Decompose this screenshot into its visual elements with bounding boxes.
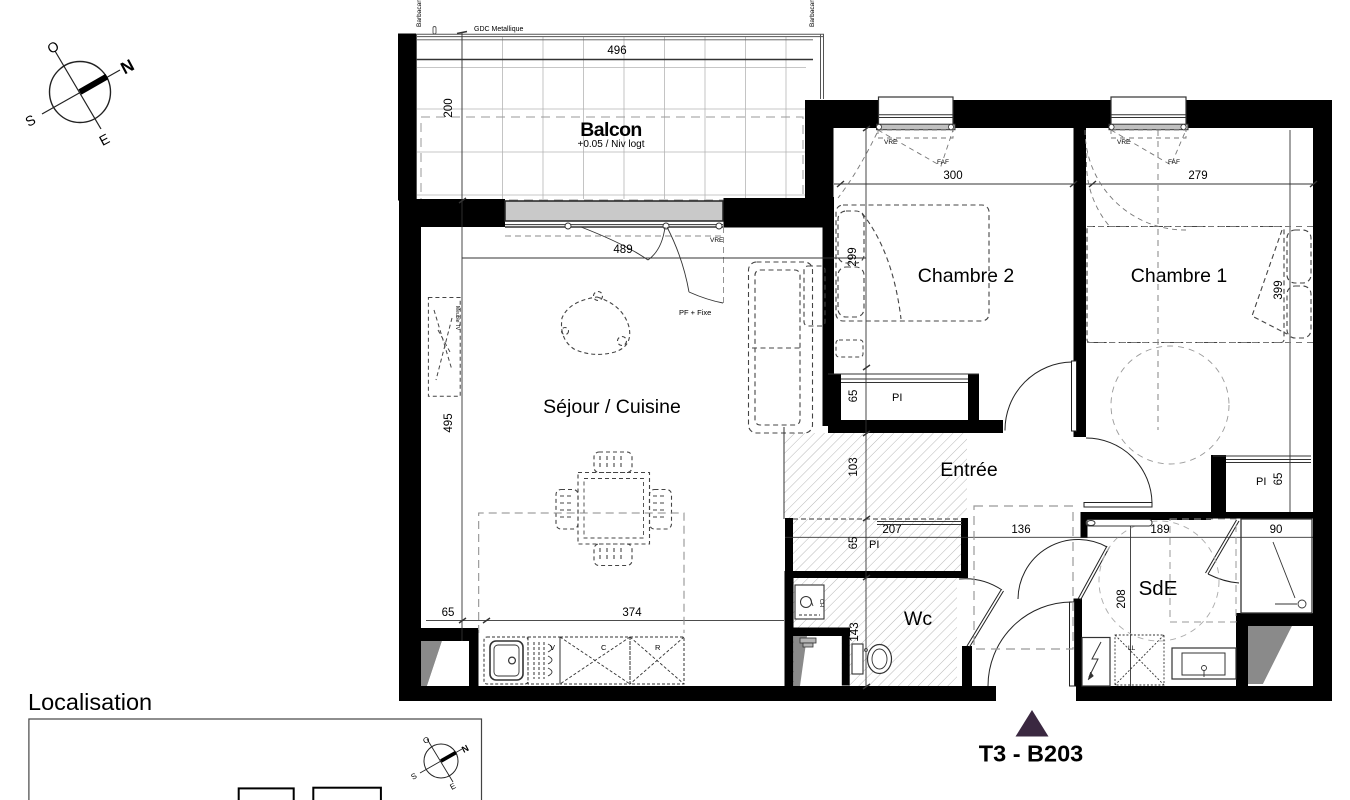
svg-text:143: 143 — [849, 622, 861, 641]
svg-text:189: 189 — [1150, 524, 1169, 536]
svg-text:200: 200 — [443, 98, 455, 117]
svg-text:489: 489 — [613, 244, 632, 256]
svg-text:208: 208 — [1116, 589, 1128, 608]
svg-text:+0.05 / Niv logt: +0.05 / Niv logt — [578, 139, 645, 150]
svg-text:65: 65 — [848, 537, 860, 550]
svg-text:Chambre 1: Chambre 1 — [1131, 265, 1227, 287]
svg-text:Localisation: Localisation — [28, 689, 152, 715]
svg-text:103: 103 — [848, 457, 860, 476]
svg-text:399: 399 — [1273, 280, 1285, 299]
svg-text:65: 65 — [848, 390, 860, 403]
svg-text:T3 - B203: T3 - B203 — [979, 741, 1084, 767]
svg-text:Séjour / Cuisine: Séjour / Cuisine — [543, 396, 681, 418]
svg-text:65: 65 — [442, 607, 455, 619]
svg-text:Balcon: Balcon — [580, 119, 641, 141]
svg-text:PI: PI — [869, 539, 879, 551]
svg-text:C: C — [601, 643, 607, 652]
svg-text:R: R — [655, 643, 661, 652]
svg-text:279: 279 — [1188, 170, 1207, 182]
svg-text:V: V — [550, 643, 555, 652]
svg-text:VRE: VRE — [1117, 139, 1131, 146]
svg-text:PI: PI — [1256, 476, 1266, 488]
svg-text:LL: LL — [1128, 645, 1136, 652]
svg-text:65: 65 — [1273, 473, 1285, 486]
svg-text:PF + Fixe: PF + Fixe — [679, 308, 711, 317]
svg-text:Barbacane: Barbacane — [809, 0, 816, 27]
svg-text:136: 136 — [1011, 524, 1030, 536]
svg-text:PI: PI — [892, 392, 902, 404]
svg-text:CH: CH — [818, 599, 824, 607]
svg-text:496: 496 — [607, 45, 626, 57]
svg-text:Chambre 2: Chambre 2 — [918, 265, 1014, 287]
svg-text:Barbacane: Barbacane — [416, 0, 423, 27]
svg-text:207: 207 — [882, 524, 901, 536]
svg-text:374: 374 — [622, 607, 642, 619]
svg-text:299: 299 — [847, 247, 859, 266]
svg-text:FAF: FAF — [937, 159, 949, 166]
svg-text:SdE: SdE — [1139, 577, 1178, 600]
svg-text:90: 90 — [1270, 524, 1283, 536]
svg-text:Entrée: Entrée — [940, 459, 997, 481]
svg-text:GDC Metallique: GDC Metallique — [474, 26, 524, 33]
svg-text:Meuble TV: Meuble TV — [454, 306, 460, 331]
svg-text:FAF: FAF — [1168, 159, 1180, 166]
svg-text:VRE: VRE — [884, 139, 898, 146]
svg-text:VRE: VRE — [710, 237, 724, 244]
svg-text:300: 300 — [943, 170, 962, 182]
svg-text:495: 495 — [443, 413, 455, 432]
svg-text:Wc: Wc — [904, 608, 932, 630]
